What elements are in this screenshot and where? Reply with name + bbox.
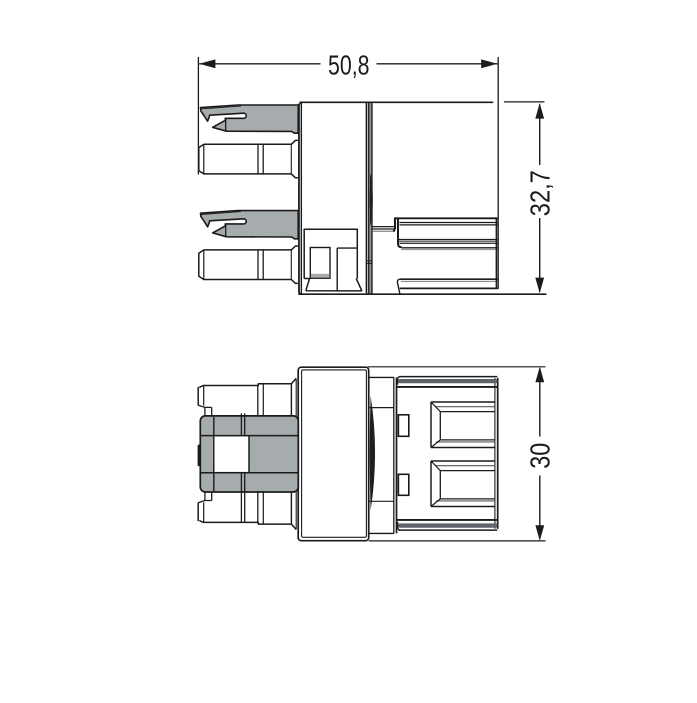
svg-text:32,7: 32,7 <box>524 170 555 216</box>
svg-text:30: 30 <box>525 443 556 469</box>
svg-text:50,8: 50,8 <box>328 50 370 81</box>
